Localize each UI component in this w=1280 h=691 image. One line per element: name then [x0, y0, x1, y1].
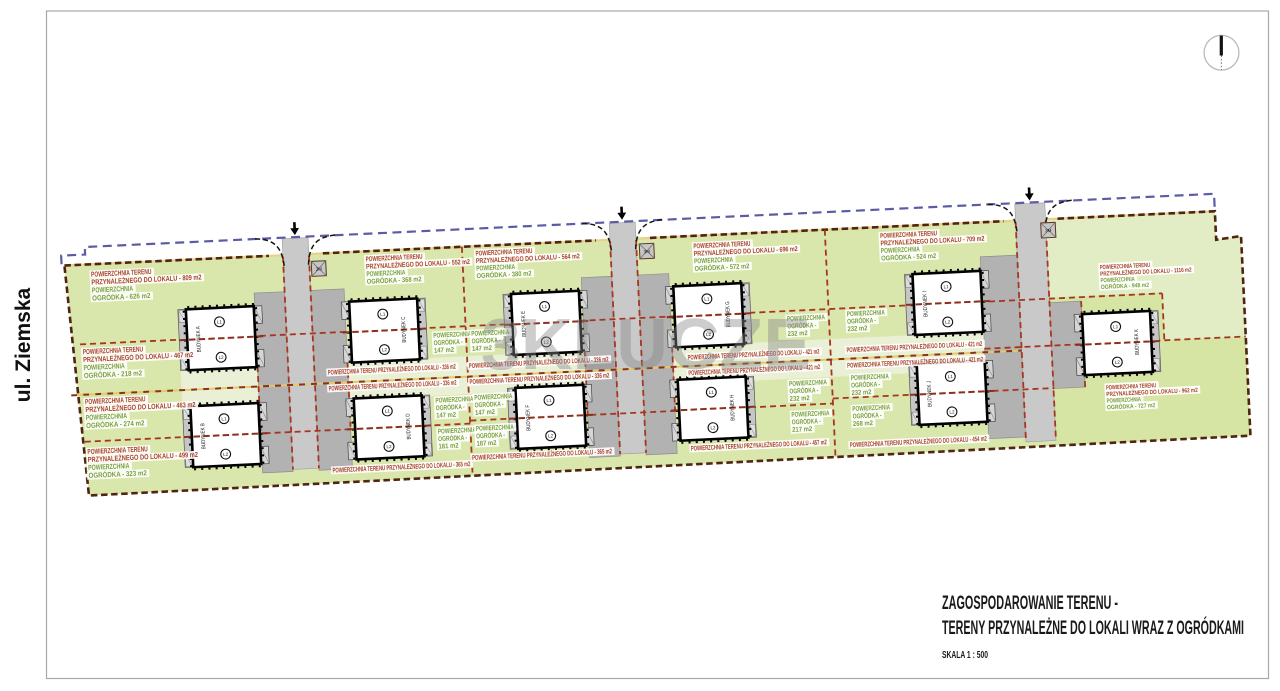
svg-text:3M: 3M [316, 266, 323, 271]
svg-text:BUDYNEK B: BUDYNEK B [200, 423, 207, 449]
svg-text:268 m2: 268 m2 [853, 420, 873, 428]
svg-text:232 m2: 232 m2 [847, 325, 867, 333]
svg-text:L2: L2 [945, 320, 951, 325]
svg-text:L1: L1 [709, 390, 715, 395]
svg-text:L2: L2 [223, 452, 229, 457]
svg-text:L1: L1 [704, 296, 710, 301]
svg-text:232 m2: 232 m2 [851, 389, 871, 397]
svg-text:BUDYNEK A: BUDYNEK A [196, 326, 203, 352]
svg-text:BUDYNEK K: BUDYNEK K [1134, 329, 1141, 355]
svg-text:L1: L1 [217, 319, 223, 324]
svg-text:L1: L1 [385, 409, 391, 414]
svg-text:147 m2: 147 m2 [475, 409, 495, 417]
svg-text:181 m2: 181 m2 [438, 443, 458, 451]
svg-text:3KLUCZE: 3KLUCZE [481, 305, 811, 385]
svg-text:L2: L2 [548, 433, 554, 438]
svg-text:BUDYNEK C: BUDYNEK C [401, 316, 408, 342]
svg-text:3M: 3M [1045, 228, 1052, 233]
svg-text:147 m2: 147 m2 [434, 347, 454, 355]
svg-text:147 m2: 147 m2 [436, 412, 456, 420]
svg-text:BUDYNEK F: BUDYNEK F [525, 404, 532, 431]
svg-text:L2: L2 [1115, 360, 1121, 365]
svg-text:ZAGOSPODAROWANIE TERENU -: ZAGOSPODAROWANIE TERENU - [942, 593, 1118, 614]
svg-text:L1: L1 [1113, 324, 1119, 329]
svg-text:BUDYNEK D: BUDYNEK D [405, 413, 412, 439]
svg-text:L1: L1 [943, 284, 949, 289]
svg-text:L1: L1 [948, 374, 954, 379]
svg-text:187 m2: 187 m2 [476, 440, 496, 448]
svg-text:L2: L2 [949, 409, 955, 414]
svg-text:L2: L2 [386, 444, 392, 449]
svg-text:TERENY PRZYNALEŻNE DO LOKALI W: TERENY PRZYNALEŻNE DO LOKALI WRAZ Z OGRÓ… [942, 617, 1244, 639]
svg-text:L2: L2 [382, 347, 388, 352]
svg-text:L2: L2 [218, 355, 224, 360]
svg-text:217 m2: 217 m2 [792, 426, 812, 434]
svg-text:BUDYNEK H: BUDYNEK H [729, 395, 736, 421]
svg-text:L2: L2 [710, 425, 716, 430]
svg-text:L1: L1 [546, 398, 552, 403]
svg-text:L1: L1 [380, 312, 386, 317]
svg-text:232 m2: 232 m2 [790, 395, 810, 403]
svg-text:3M: 3M [644, 249, 651, 254]
svg-text:L1: L1 [221, 416, 227, 421]
svg-text:BUDYNEK J: BUDYNEK J [927, 381, 934, 407]
svg-text:ul. Ziemska: ul. Ziemska [12, 287, 35, 402]
svg-text:BUDYNEK I: BUDYNEK I [922, 290, 929, 317]
svg-text:SKALA 1 : 500: SKALA 1 : 500 [942, 650, 988, 661]
